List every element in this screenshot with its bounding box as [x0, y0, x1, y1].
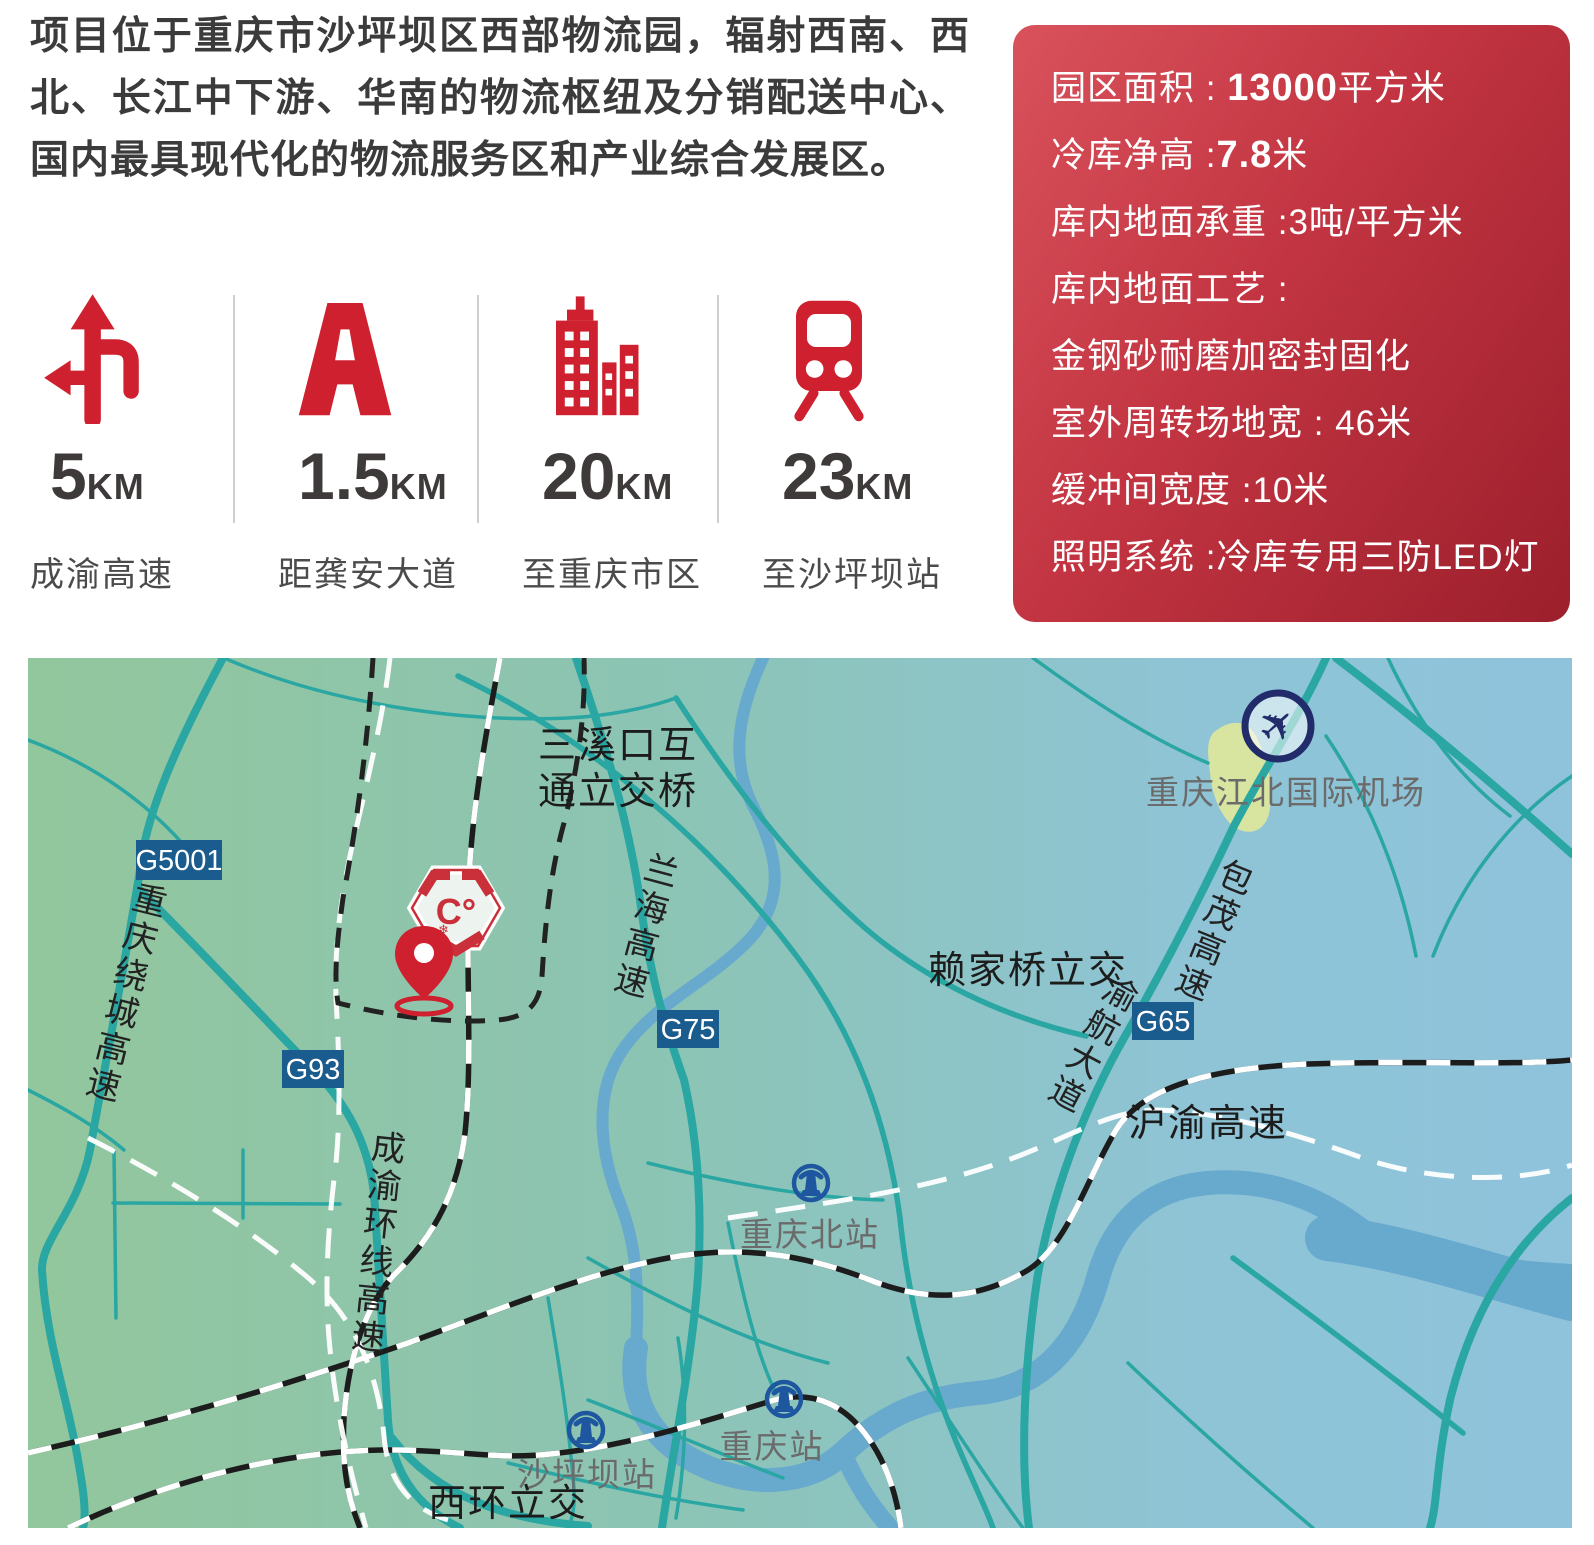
laijiaqiao-label: 赖家桥立交 — [928, 950, 1128, 992]
spec-row: 库内地面工艺 : — [1051, 256, 1532, 323]
stat-value: 1.5KM — [298, 442, 493, 521]
svg-text:G5001: G5001 — [135, 845, 222, 877]
stat-shapingba-station: 23KM 至沙坪坝站 — [762, 292, 977, 596]
stat-label: 至重庆市区 — [522, 547, 737, 596]
cq-north-station-label: 重庆北站 — [740, 1216, 880, 1253]
spec-row: 库内地面承重 :3吨/平方米 — [1051, 189, 1532, 256]
junction-arrows-icon — [42, 292, 245, 424]
stat-divider — [233, 295, 235, 523]
stat-divider — [477, 295, 479, 523]
stat-label: 距龚安大道 — [278, 547, 493, 596]
svg-text:G65: G65 — [1136, 1006, 1191, 1038]
stat-label: 成渝高速 — [30, 547, 245, 596]
huyu-label: 沪渝高速 — [1128, 1103, 1288, 1145]
stat-chengyu-expressway: 5KM 成渝高速 — [30, 292, 245, 596]
spec-row: 园区面积 : 13000平方米 — [1051, 55, 1532, 122]
intro-paragraph: 项目位于重庆市沙坪坝区西部物流园，辐射西南、西北、长江中下游、华南的物流枢纽及分… — [30, 6, 970, 192]
sanxikou-label-line1: 三溪口互 — [538, 725, 698, 767]
train-icon — [774, 292, 977, 424]
spec-row: 室外周转场地宽 : 46米 — [1051, 390, 1532, 457]
spec-row: 缓冲间宽度 :10米 — [1051, 457, 1532, 524]
stat-divider — [717, 295, 719, 523]
spec-row: 照明系统 :冷库专用三防LED灯 — [1051, 524, 1532, 591]
airport-plane-icon: ✈ — [1245, 693, 1311, 759]
stat-value: 5KM — [50, 442, 245, 521]
stat-gongan-avenue: 1.5KM 距龚安大道 — [278, 292, 493, 596]
location-map: C° ❄ ✈ G5001 G93 G75 G65 三溪口互 通立交桥 重庆绕城高… — [28, 658, 1572, 1528]
xihuan-label: 西环立交 — [428, 1483, 588, 1525]
stat-label: 至沙坪坝站 — [762, 547, 977, 596]
stat-value: 23KM — [782, 442, 977, 521]
sanxikou-label-line2: 通立交桥 — [538, 771, 698, 813]
svg-text:G93: G93 — [286, 1054, 341, 1086]
spec-row: 冷库净高 :7.8米 — [1051, 122, 1532, 189]
city-buildings-icon — [534, 292, 737, 424]
airport-label: 重庆江北国际机场 — [1146, 774, 1426, 811]
svg-text:G75: G75 — [661, 1014, 716, 1046]
park-spec-panel: 园区面积 : 13000平方米 冷库净高 :7.8米 库内地面承重 :3吨/平方… — [1013, 25, 1570, 622]
spec-row: 金钢砂耐磨加密封固化 — [1051, 323, 1532, 390]
distance-stats: 5KM 成渝高速 1.5KM 距龚安大道 — [30, 292, 970, 592]
highway-icon — [290, 292, 493, 424]
cq-station-label: 重庆站 — [720, 1428, 825, 1465]
stat-value: 20KM — [542, 442, 737, 521]
stat-chongqing-downtown: 20KM 至重庆市区 — [522, 292, 737, 596]
